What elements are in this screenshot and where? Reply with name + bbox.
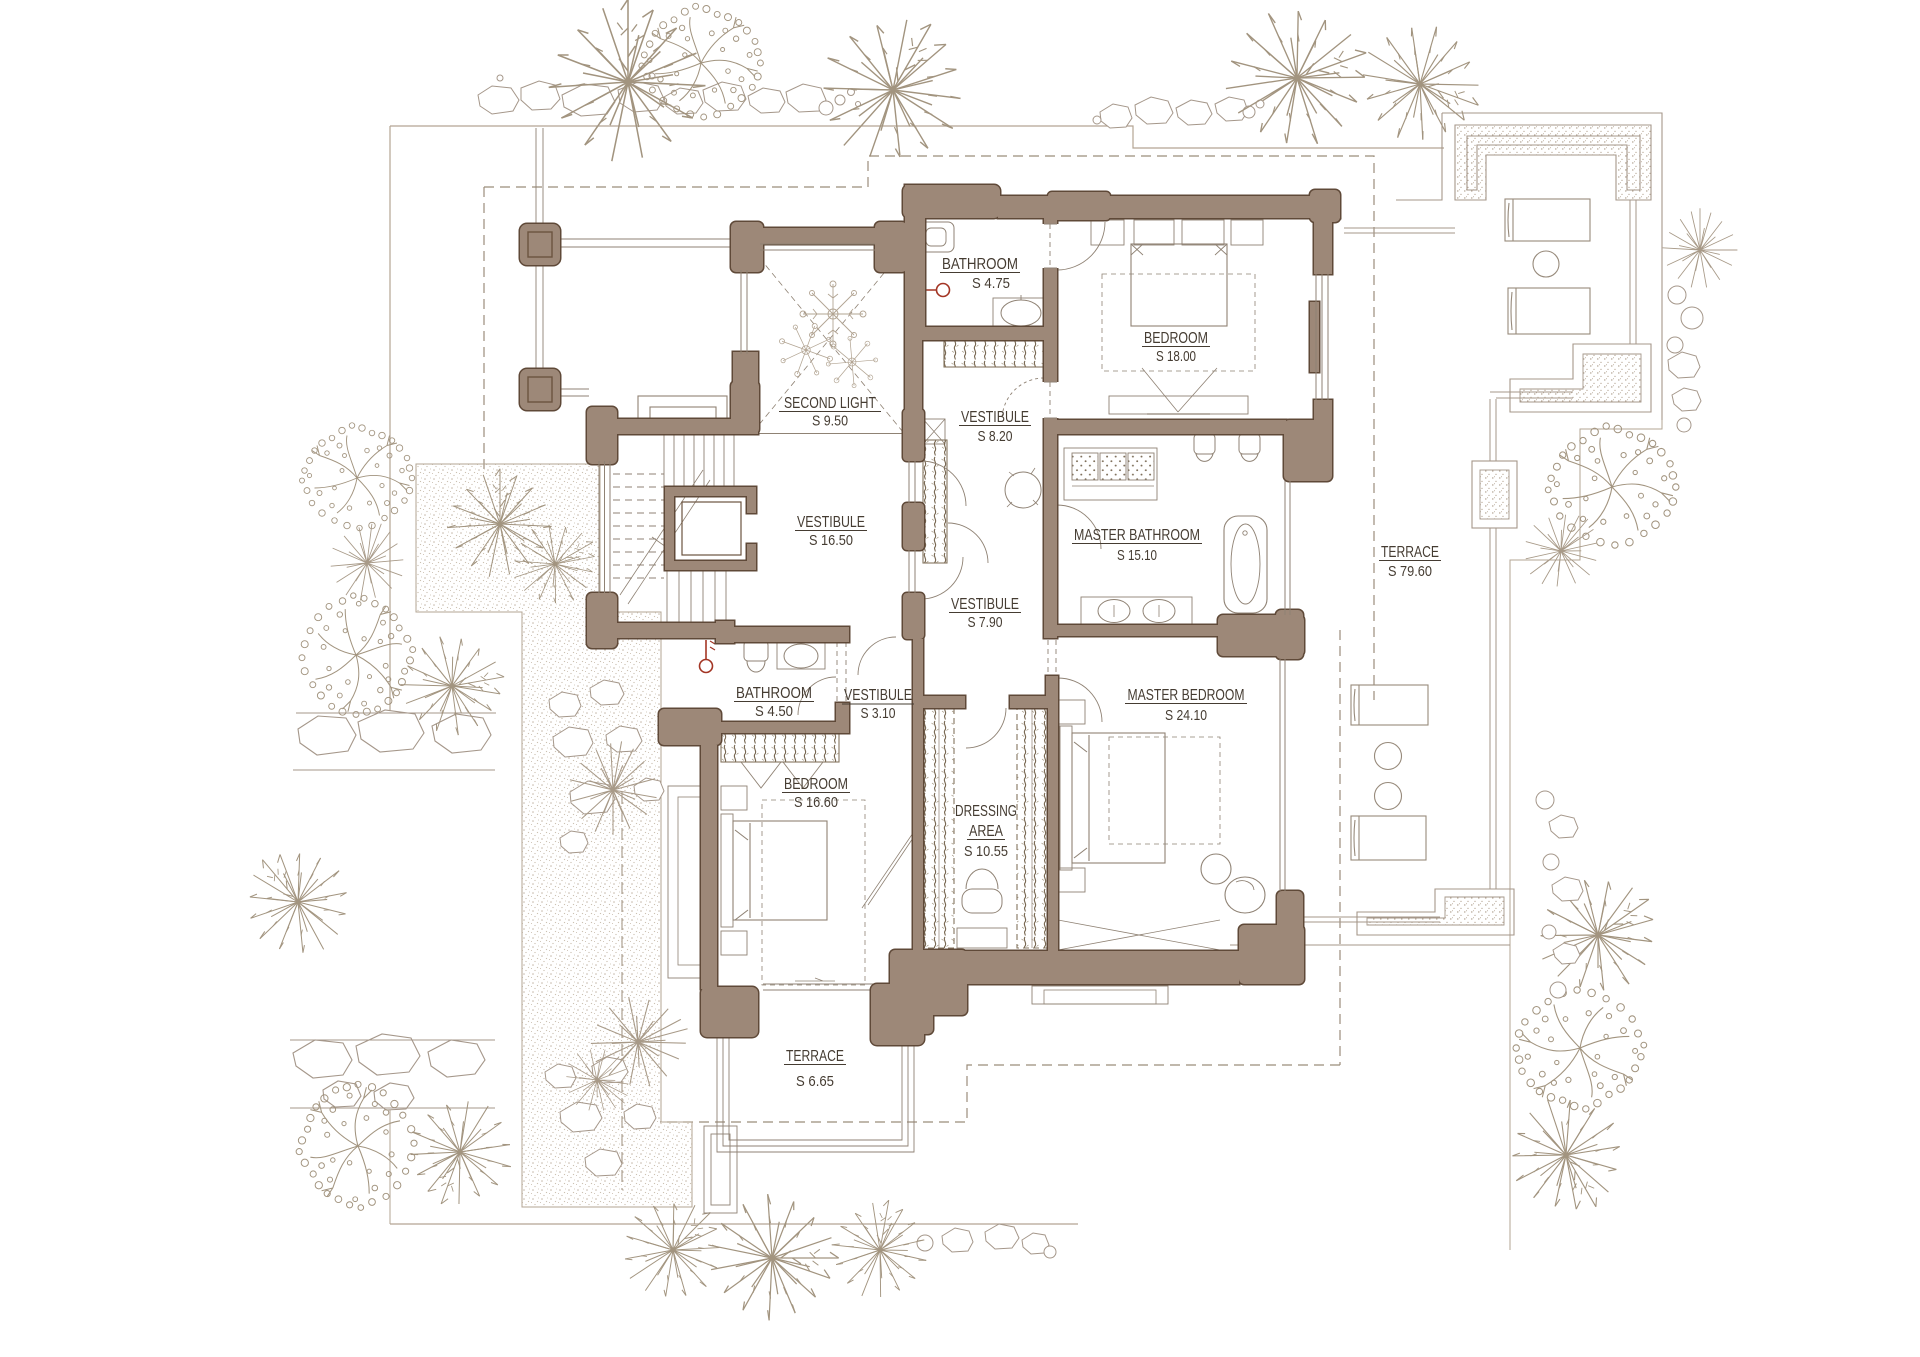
svg-text:S 3.10: S 3.10: [861, 705, 896, 722]
svg-text:BATHROOM: BATHROOM: [736, 685, 812, 702]
svg-text:S 15.10: S 15.10: [1117, 547, 1157, 564]
svg-text:S 4.50: S 4.50: [755, 703, 793, 720]
svg-text:S 4.75: S 4.75: [972, 275, 1010, 292]
svg-text:VESTIBULE: VESTIBULE: [844, 687, 912, 704]
svg-text:TERRACE: TERRACE: [1381, 544, 1439, 561]
svg-text:DRESSING: DRESSING: [955, 803, 1017, 820]
svg-text:S 6.65: S 6.65: [796, 1073, 834, 1090]
svg-text:AREA: AREA: [969, 823, 1004, 840]
svg-text:S 7.90: S 7.90: [968, 614, 1003, 631]
svg-text:S 79.60: S 79.60: [1388, 563, 1432, 580]
svg-text:TERRACE: TERRACE: [786, 1048, 844, 1065]
svg-text:S 18.00: S 18.00: [1156, 348, 1196, 365]
svg-text:VESTIBULE: VESTIBULE: [797, 514, 865, 531]
svg-text:VESTIBULE: VESTIBULE: [961, 409, 1029, 426]
svg-text:MASTER BEDROOM: MASTER BEDROOM: [1128, 687, 1245, 704]
svg-text:MASTER BATHROOM: MASTER BATHROOM: [1074, 527, 1200, 544]
svg-text:S 9.50: S 9.50: [812, 413, 848, 430]
svg-text:BEDROOM: BEDROOM: [1144, 330, 1208, 347]
svg-text:S 16.60: S 16.60: [794, 794, 838, 811]
svg-text:S 16.50: S 16.50: [809, 532, 853, 549]
svg-text:VESTIBULE: VESTIBULE: [951, 596, 1019, 613]
svg-text:BATHROOM: BATHROOM: [942, 256, 1018, 273]
svg-text:SECOND LIGHT: SECOND LIGHT: [784, 395, 876, 412]
svg-text:BEDROOM: BEDROOM: [784, 776, 848, 793]
svg-text:S 8.20: S 8.20: [978, 428, 1013, 445]
svg-text:S 10.55: S 10.55: [964, 843, 1008, 860]
svg-text:S 24.10: S 24.10: [1165, 707, 1207, 724]
